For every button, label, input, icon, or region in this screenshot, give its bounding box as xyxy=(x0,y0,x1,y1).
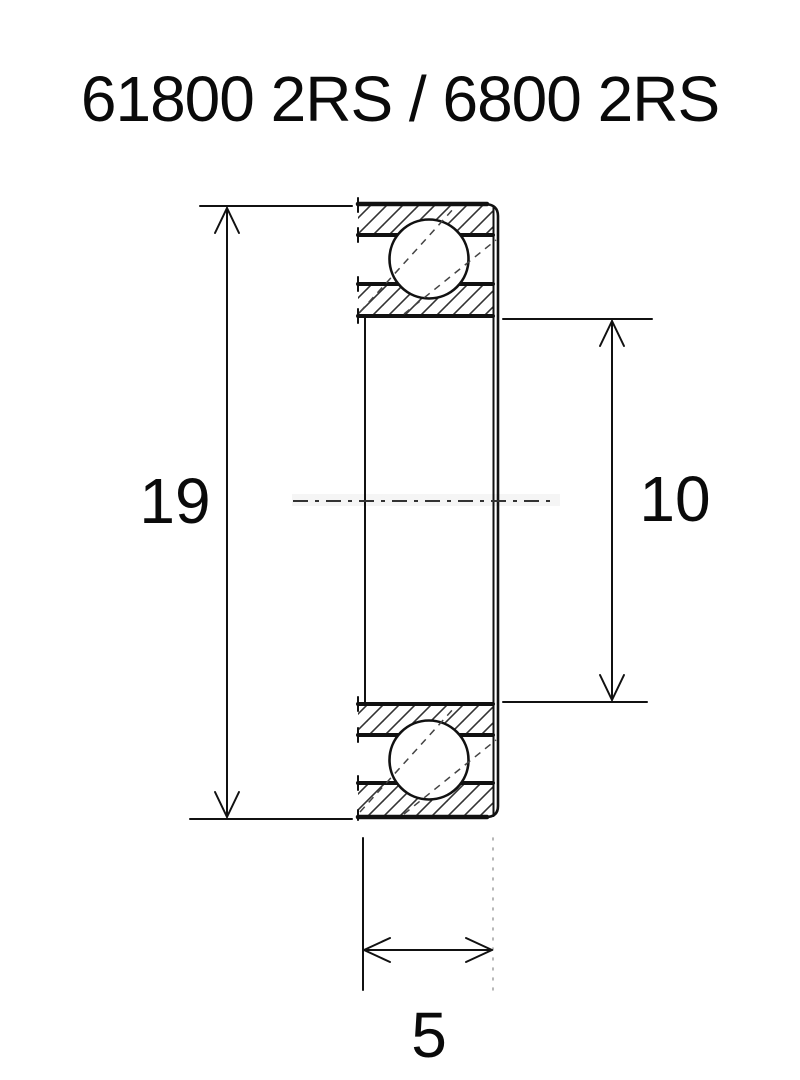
bore-diameter-value: 10 xyxy=(620,464,730,534)
ball-bottom xyxy=(390,721,469,800)
outer-diameter-value: 19 xyxy=(120,466,230,536)
dimension-width xyxy=(363,838,493,990)
bearing-cross-section-diagram xyxy=(0,0,800,1080)
bearing-drawing-page: 61800 2RS / 6800 2RS xyxy=(0,0,800,1080)
width-value: 5 xyxy=(374,1000,484,1070)
ball-top xyxy=(390,220,469,299)
